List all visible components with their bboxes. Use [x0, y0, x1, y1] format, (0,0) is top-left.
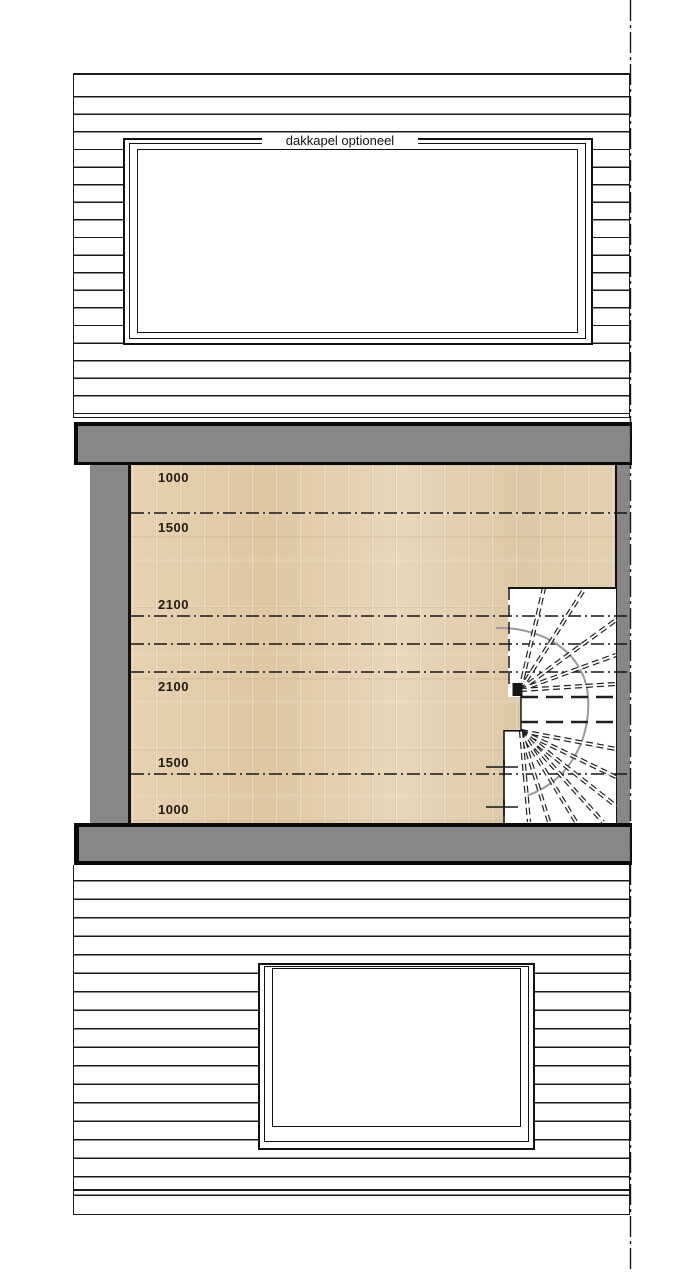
floor-parquet — [128, 465, 617, 823]
headroom-label-2100-bottom: 2100 — [158, 680, 189, 694]
floorplan-canvas: dakkapel optioneel 1000 1500 2100 2100 1… — [0, 0, 694, 1280]
headroom-label-2100-top: 2100 — [158, 598, 189, 612]
dormer-outline-inner — [137, 149, 578, 333]
headroom-label-1500-top: 1500 — [158, 521, 189, 535]
headroom-label-1000-bottom: 1000 — [158, 803, 189, 817]
wall-bottom-bar — [74, 823, 632, 865]
dormer-label: dakkapel optioneel — [262, 133, 418, 148]
wall-left — [90, 465, 128, 823]
headroom-label-1000-top: 1000 — [158, 471, 189, 485]
headroom-label-1500-bottom: 1500 — [158, 756, 189, 770]
roof-ridge-double-line — [74, 1189, 629, 1191]
wall-top-bar — [74, 422, 632, 465]
roof-window-outline-inner — [272, 968, 521, 1127]
wall-right — [617, 465, 630, 823]
